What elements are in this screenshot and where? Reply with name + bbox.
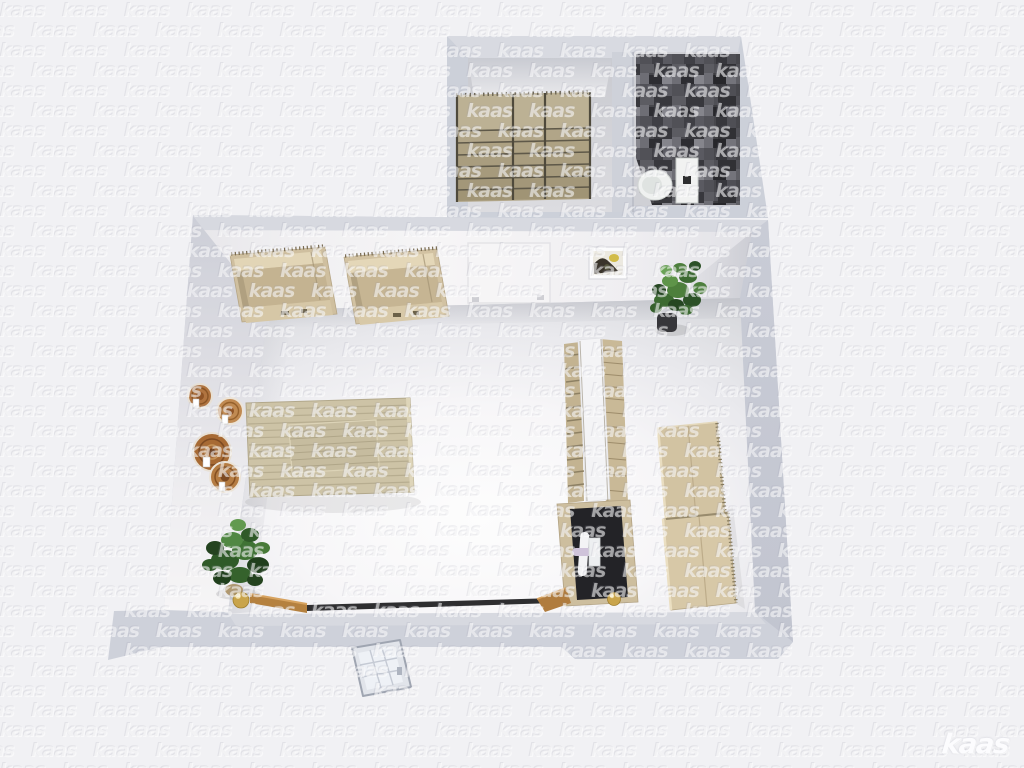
- tile-shadow-right: [714, 54, 740, 205]
- wall-cabinet-right: [344, 248, 449, 325]
- gold-sphere-left: [233, 592, 249, 608]
- plate: [217, 398, 243, 424]
- wall-cabinet-left: [230, 246, 337, 323]
- plate: [188, 384, 212, 408]
- annex-structure: [447, 36, 768, 218]
- plate: [210, 462, 240, 492]
- floorplan-render: kaas kaas kaas kaas kaas kaas kaas kaas …: [0, 0, 1024, 768]
- brand-logo: kaas: [940, 729, 1010, 760]
- divider-wall: [612, 52, 634, 212]
- storage-room: [456, 58, 612, 212]
- floorplan-drawing: [0, 0, 1024, 768]
- storage-back-wall-face: [468, 58, 612, 97]
- door-outline-on-wall: [468, 243, 550, 303]
- open-entry-door: [352, 640, 411, 696]
- main-room: [108, 215, 793, 696]
- bottom-wall-inner-edge: [228, 612, 766, 626]
- toilet-button: [683, 176, 691, 184]
- gold-sphere-right: [608, 593, 621, 606]
- right-wall-cabinet-lower: [663, 512, 736, 610]
- framed-picture: [589, 247, 627, 279]
- desk-black-top: [557, 500, 638, 606]
- slatted-table: [245, 398, 421, 513]
- storage-shelving-unit: [456, 92, 591, 202]
- tall-shelf-unit: [564, 338, 628, 506]
- bathroom: [634, 52, 740, 206]
- toilet-seat: [642, 176, 662, 194]
- door-handle: [397, 667, 402, 675]
- plant-pot: [657, 313, 677, 332]
